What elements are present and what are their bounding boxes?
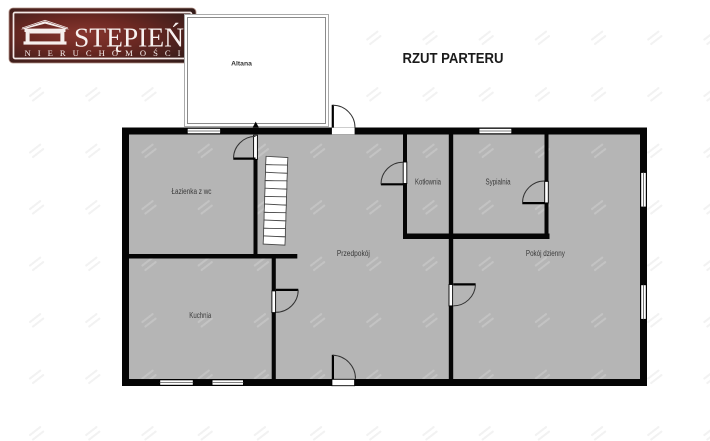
svg-text:Łazienka z wc: Łazienka z wc: [172, 187, 212, 196]
svg-text:NIERUCHOMOŚCI: NIERUCHOMOŚCI: [25, 48, 181, 58]
svg-text:Kuchnia: Kuchnia: [189, 311, 212, 320]
svg-text:Kotłownia: Kotłownia: [415, 178, 442, 187]
svg-text:RZUT PARTERU: RZUT PARTERU: [403, 50, 504, 67]
svg-text:Sypialnia: Sypialnia: [486, 178, 512, 187]
svg-text:Pokój dzienny: Pokój dzienny: [526, 249, 565, 258]
svg-text:Altana: Altana: [231, 61, 252, 68]
svg-text:Przedpokój: Przedpokój: [337, 249, 370, 258]
